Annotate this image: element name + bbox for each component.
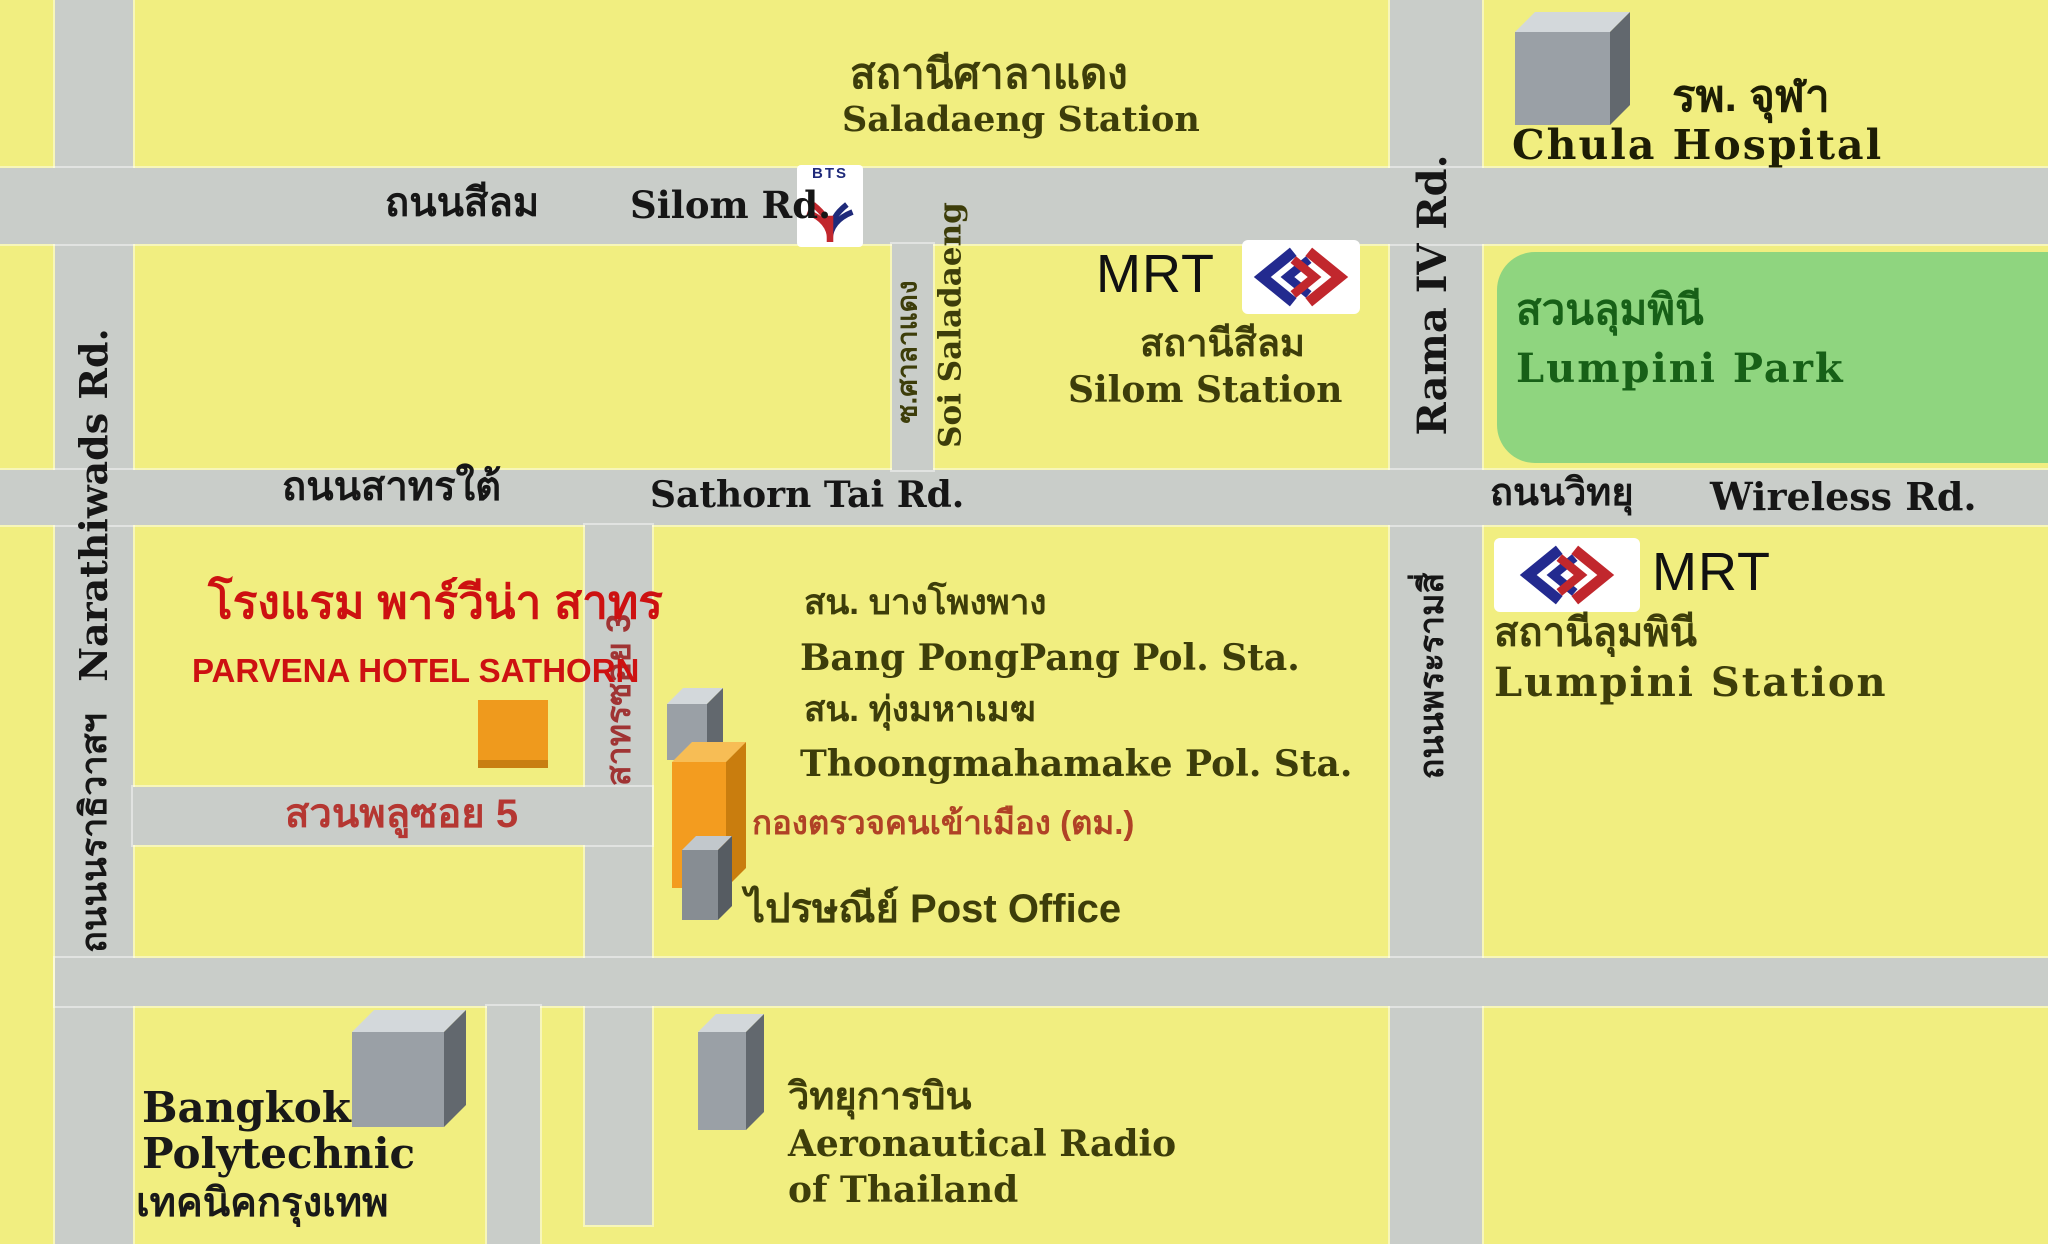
post-office-building-icon <box>682 850 718 920</box>
polytechnic-label-en1: Bangkok <box>142 1086 351 1130</box>
mrt-lumpini-logo <box>1494 538 1640 612</box>
parvena-hotel-label-en: PARVENA HOTEL SATHORN <box>192 654 639 689</box>
polytechnic-label-en2: Polytechnic <box>142 1132 415 1176</box>
immigration-label: กองตรวจคนเข้าเมือง (ตม.) <box>752 806 1134 841</box>
soi-saladaeng-label-en: Soi Saladaeng <box>935 202 968 448</box>
lumpini-park-label-thai: สวนลุมพินี <box>1516 288 1704 332</box>
wireless-road-label-thai: ถนนวิทยุ <box>1490 474 1634 514</box>
mrt-silom-logo <box>1242 240 1360 314</box>
mrt-logo-icon <box>1507 544 1627 606</box>
bottom-road <box>55 958 2048 1006</box>
polytechnic-label-thai: เทคนิคกรุงเทพ <box>136 1182 389 1224</box>
rama4-road-label-en: Rama IV Rd. <box>1412 154 1454 435</box>
lumpini-park-label-en: Lumpini Park <box>1516 348 1845 390</box>
wireless-road-label-en: Wireless Rd. <box>1710 477 1977 517</box>
silom-road-label-en: Silom Rd. <box>630 186 831 225</box>
aerothai-building-icon <box>698 1032 746 1130</box>
post-office-label: ไปรษณีย์ Post Office <box>745 888 1121 930</box>
sathorn-road-label-en: Sathorn Tai Rd. <box>650 477 964 515</box>
mrt-silom-label: MRT <box>1096 246 1215 303</box>
building-front-face <box>682 850 718 920</box>
aerothai-label-en2: of Thailand <box>788 1172 1018 1210</box>
suan-phlu-soi5-label: สวนพลูซอย 5 <box>285 793 518 835</box>
building-front-face <box>352 1032 444 1127</box>
chula-hospital-label-thai: รพ. จุฬา <box>1672 74 1830 120</box>
bangkok-polytechnic-building-icon <box>352 1032 444 1127</box>
narathiwat-road-label-thai: ถนนนราธิวาสฯ <box>75 713 113 953</box>
soi-saladaeng-label-thai: ซ.ศาลาแดง <box>892 280 921 423</box>
lumpini-station-label-en: Lumpini Station <box>1494 662 1888 704</box>
aerothai-label-thai: วิทยุการบิน <box>788 1078 972 1118</box>
sathorn-soi3-label: สาทรซอย 3 <box>602 614 638 786</box>
sathorn-road-label-thai: ถนนสาทรใต้ <box>282 466 501 508</box>
silom-road-label-thai: ถนนสีลม <box>385 182 539 224</box>
mrt-logo-icon <box>1249 246 1353 308</box>
thoongmahamake-label-en: Thoongmahamake Pol. Sta. <box>800 746 1352 784</box>
building-side-face <box>444 1010 466 1127</box>
bangkok-sathorn-map: สวนลุมพินี Lumpini Park BTS <box>0 0 2048 1244</box>
saladaeng-station-label-thai: สถานีศาลาแดง <box>850 52 1128 96</box>
chula-hospital-building-icon <box>1515 32 1610 125</box>
silom-road <box>0 168 2048 244</box>
aerothai-label-en1: Aeronautical Radio <box>788 1126 1176 1164</box>
parvena-hotel-label-thai: โรงแรม พาร์วีน่า สาทร <box>208 578 663 626</box>
silom-station-label-en: Silom Station <box>1068 372 1342 410</box>
rama4-road-label-thai: ถนนพระรามสี่ <box>1415 573 1451 780</box>
building-side-face <box>746 1014 764 1130</box>
saladaeng-station-label-en: Saladaeng Station <box>842 102 1200 139</box>
silom-station-label-thai: สถานีสีลม <box>1140 325 1305 365</box>
parvena-hotel-marker <box>478 700 548 768</box>
lumpini-station-label-thai: สถานีลุมพินี <box>1494 612 1697 654</box>
mrt-lumpini-label: MRT <box>1652 544 1771 601</box>
building-front-face <box>698 1032 746 1130</box>
building-front-face <box>1515 32 1610 125</box>
building-side-face <box>718 836 732 920</box>
bangpongpang-label-en: Bang PongPang Pol. Sta. <box>800 640 1300 678</box>
small-soi-road <box>487 1006 540 1244</box>
bts-logo-text: BTS <box>797 165 863 182</box>
chula-hospital-label-en: Chula Hospital <box>1512 124 1883 167</box>
bangpongpang-label-thai: สน. บางโพงพาง <box>804 585 1046 622</box>
thoongmahamake-label-thai: สน. ทุ่งมหาเมฆ <box>804 692 1036 729</box>
building-side-face <box>1610 12 1630 125</box>
narathiwat-road-label-en: Narathiwads Rd. <box>74 328 114 682</box>
